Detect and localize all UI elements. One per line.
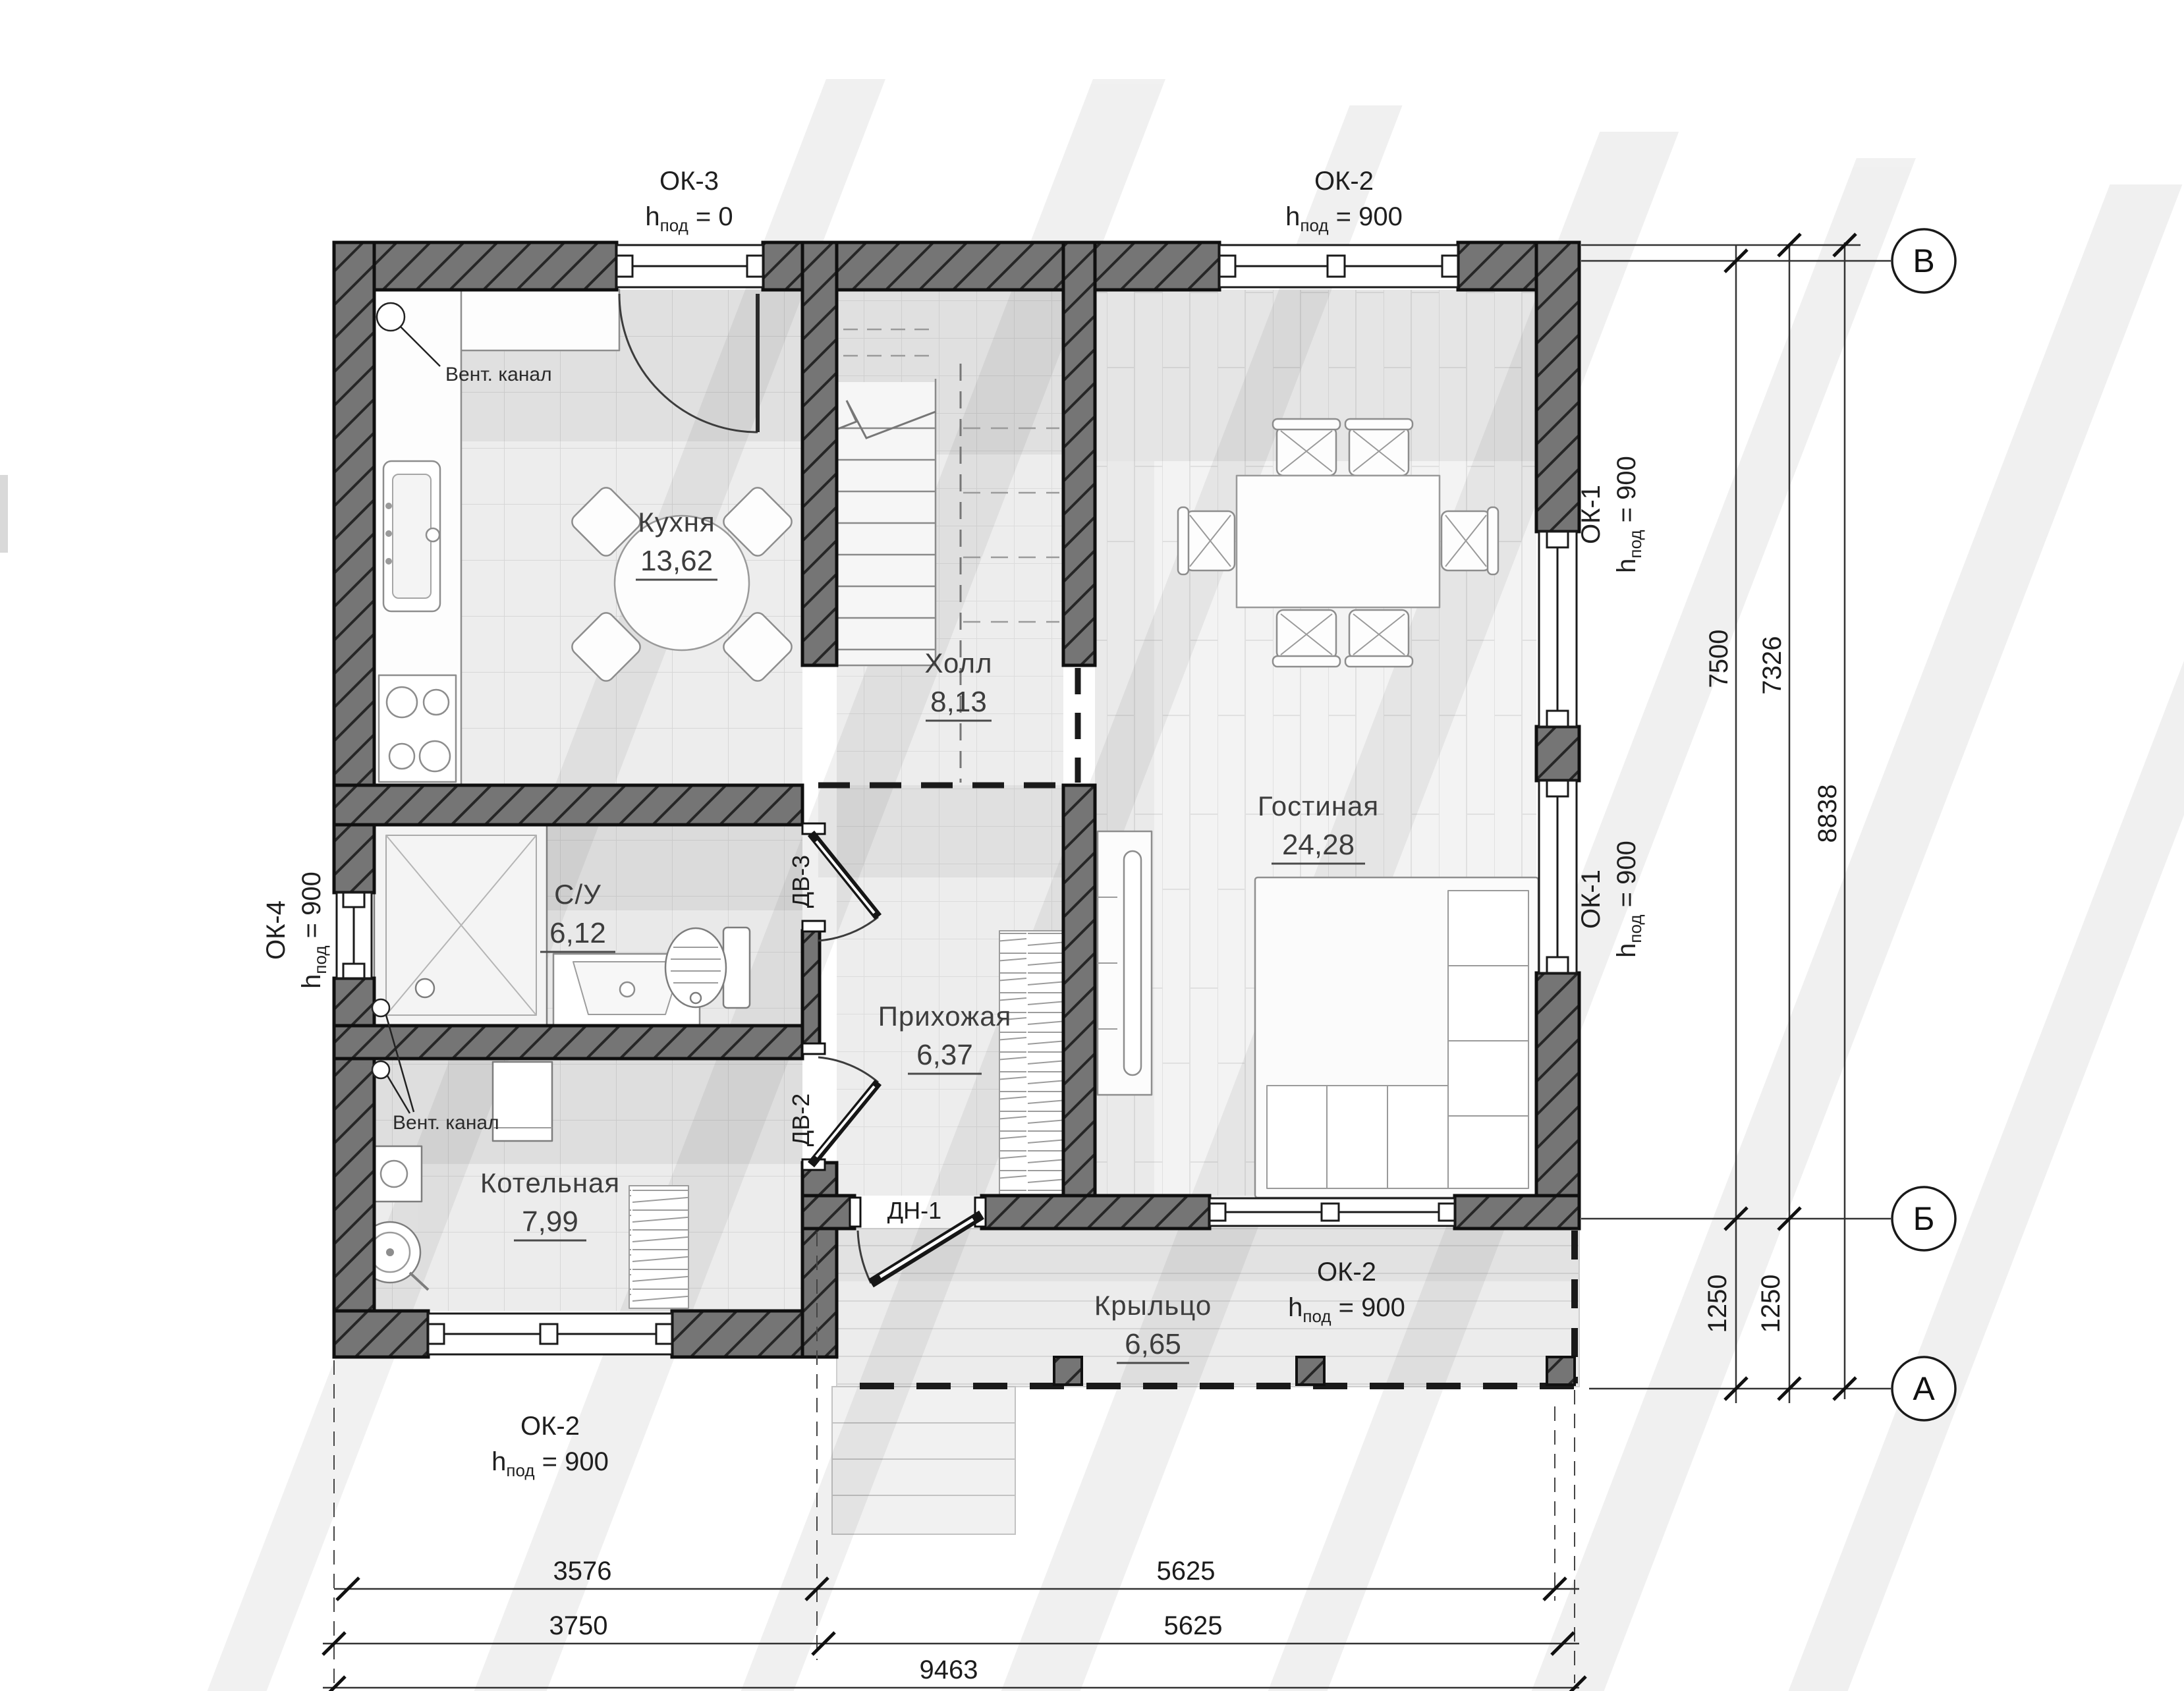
boiler <box>493 1062 552 1141</box>
note-vent-kitchen: Вент. канал <box>445 364 552 385</box>
window-sill-ok1-lower: hпод = 900 <box>1612 841 1645 958</box>
toilet <box>665 928 750 1008</box>
dim-5625-a: 5625 <box>1157 1557 1216 1586</box>
dining-table <box>1237 476 1440 607</box>
window-label-ok1-upper: ОК-1 <box>1577 485 1606 544</box>
window-label-ok2-top: ОК-2 <box>1314 167 1374 196</box>
corner-sofa <box>1255 877 1538 1198</box>
dim-7326: 7326 <box>1758 636 1787 695</box>
window-ok2-top <box>1219 245 1458 287</box>
room-area-kitchen: 13,62 <box>640 545 713 577</box>
dining-chair <box>1345 419 1413 476</box>
dining-chair <box>1345 610 1413 667</box>
window-ok4 <box>337 893 372 978</box>
room-area-porch: 6,65 <box>1125 1328 1181 1360</box>
room-label-hall: Холл <box>925 648 993 679</box>
door-label-dn1: ДН-1 <box>887 1197 941 1224</box>
room-label-entry: Прихожая <box>878 1001 1012 1032</box>
door-label-dv3: ДВ-3 <box>787 855 814 908</box>
room-label-kitchen: Кухня <box>638 507 715 538</box>
room-area-hall: 8,13 <box>930 686 987 718</box>
room-label-bathroom: С/У <box>554 879 602 910</box>
floor-plan-canvas: В Б А 7500 7326 8838 1250 1250 <box>0 0 2184 1691</box>
window-label-ok2-porch: ОК-2 <box>1317 1258 1376 1287</box>
dim-3576: 3576 <box>553 1557 612 1586</box>
window-label-ok3: ОК-3 <box>659 167 719 196</box>
window-label-ok2-boiler: ОК-2 <box>520 1412 580 1441</box>
room-label-boiler: Котельная <box>480 1167 620 1198</box>
window-sill-ok2-top: hпод = 900 <box>1285 202 1403 235</box>
dim-7500: 7500 <box>1704 630 1733 688</box>
window-ok1-lower <box>1539 781 1577 973</box>
axis-letter-b: Б <box>1913 1200 1935 1237</box>
tv-unit <box>1098 831 1152 1095</box>
door-label-dv2: ДВ-2 <box>787 1094 814 1146</box>
window-label-ok1-lower: ОК-1 <box>1577 870 1606 929</box>
dim-1250-a: 1250 <box>1703 1275 1732 1333</box>
dim-3750: 3750 <box>549 1611 608 1640</box>
dining-chair <box>1178 507 1235 574</box>
window-ok1-upper <box>1539 532 1577 727</box>
dining-chair <box>1273 610 1340 667</box>
dim-8838: 8838 <box>1813 785 1842 843</box>
room-area-entry: 6,37 <box>916 1039 973 1071</box>
window-ok2-boiler <box>428 1314 672 1354</box>
window-label-ok4: ОК-4 <box>262 901 291 960</box>
left-edge-artifact <box>0 475 8 553</box>
window-sill-ok2-boiler: hпод = 900 <box>491 1447 609 1480</box>
room-area-bathroom: 6,12 <box>549 917 606 949</box>
window-sill-ok1-upper: hпод = 900 <box>1612 456 1645 573</box>
window-sill-ok4: hпод = 900 <box>297 872 330 989</box>
room-area-living: 24,28 <box>1282 829 1355 861</box>
room-label-porch: Крыльцо <box>1094 1290 1212 1321</box>
dining-chair <box>1442 507 1498 574</box>
window-ok2-porch <box>1210 1198 1455 1226</box>
sink-faucet <box>426 528 439 541</box>
note-vent-boiler: Вент. канал <box>393 1112 499 1134</box>
dim-9463: 9463 <box>920 1655 978 1684</box>
shower <box>374 825 547 1026</box>
axis-letter-a: А <box>1913 1370 1935 1407</box>
room-area-boiler: 7,99 <box>522 1206 578 1238</box>
axis-letter-v: В <box>1913 242 1934 279</box>
dining-chair <box>1273 419 1340 476</box>
dim-5625-b: 5625 <box>1164 1611 1223 1640</box>
window-ok3 <box>617 245 763 287</box>
dim-1250-b: 1250 <box>1756 1275 1785 1333</box>
window-sill-ok3: hпод = 0 <box>645 202 733 235</box>
room-label-living: Гостиная <box>1258 790 1379 821</box>
